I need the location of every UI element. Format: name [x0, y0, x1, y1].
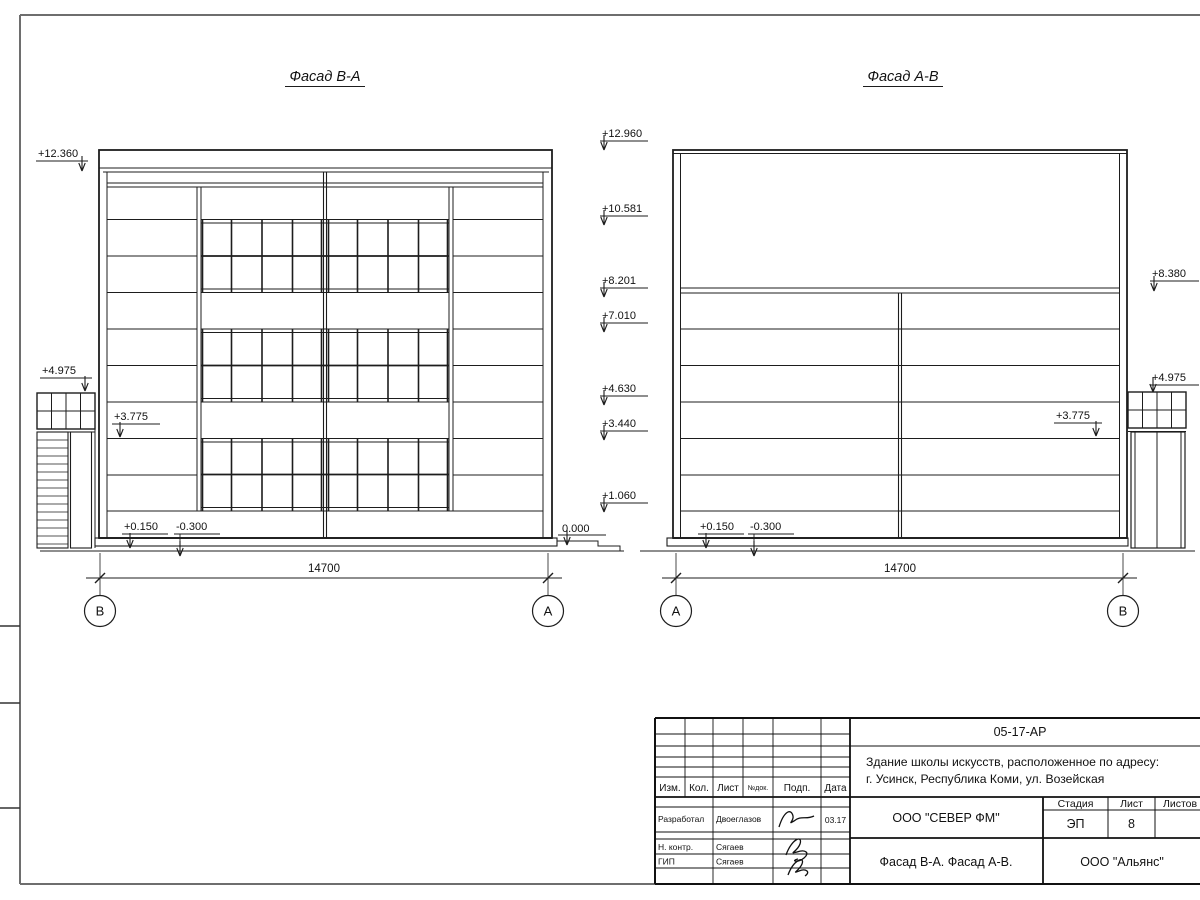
row1-date: 03.17: [825, 815, 847, 825]
stage-value: ЭП: [1067, 817, 1085, 831]
dimension-label: 14700: [884, 563, 916, 575]
stage-label: Стадия: [1058, 798, 1094, 810]
project-name-line2: г. Усинск, Республика Коми, ул. Возейска…: [866, 772, 1104, 786]
row3-role: ГИП: [658, 857, 675, 867]
row3-name: Сягаев: [716, 857, 744, 867]
elevation-mark: 0.000: [562, 523, 590, 535]
title-block: 05-17-АР Здание школы искусств, располож…: [655, 718, 1200, 884]
sheets-label: Листов: [1163, 798, 1198, 810]
sheet-label: Лист: [1120, 798, 1143, 810]
sheet-frame: [0, 15, 1200, 884]
axis-label: А: [544, 604, 553, 619]
elevation-mark: +4.630: [602, 383, 636, 395]
right-tower: [1128, 392, 1186, 548]
col-header-doc: №док.: [748, 785, 769, 792]
row1-role: Разработал: [658, 814, 704, 824]
drawing-title: Фасад В-А. Фасад А-В.: [880, 855, 1013, 869]
facade-left-title-text: Фасад В-А: [289, 69, 360, 85]
col-header-kol: Кол.: [689, 783, 709, 794]
axis-label: А: [672, 604, 681, 619]
facade-left-dimension: 14700 В А: [85, 553, 564, 627]
elevation-mark: +8.380: [1152, 268, 1186, 280]
signature-row1: [779, 812, 814, 827]
col-header-podp: Подп.: [784, 783, 811, 794]
facade-drawing-canvas: Фасад В-А Фасад А-В: [0, 0, 1200, 900]
dimension-label: 14700: [308, 563, 340, 575]
facade-right-dimension: 14700 А В: [661, 553, 1139, 627]
facade-right-drawing: [640, 150, 1195, 551]
elevation-mark: +4.975: [42, 365, 76, 377]
elevation-mark: +3.775: [1056, 410, 1090, 422]
elevation-mark: +3.775: [114, 411, 148, 423]
row1-name: Двоеглазов: [716, 814, 762, 824]
facade-right-title: Фасад А-В: [863, 69, 943, 87]
elevation-mark: +7.010: [602, 310, 636, 322]
elevation-mark: +1.060: [602, 490, 636, 502]
doc-code: 05-17-АР: [994, 725, 1047, 739]
elevation-mark: +12.960: [602, 128, 642, 140]
drawing-sheet: Фасад В-А Фасад А-В: [0, 0, 1200, 900]
col-header-data: Дата: [824, 783, 847, 794]
facade-right-elevation-marks: +8.380 +4.975 +3.775 +0.150 -0.300: [698, 268, 1199, 556]
left-tower: [37, 393, 95, 548]
org-name: ООО "СЕВЕР ФМ": [892, 811, 999, 825]
row2-role: Н. контр.: [658, 842, 693, 852]
facade-left-title: Фасад В-А: [285, 69, 365, 87]
axis-label: В: [1119, 604, 1128, 619]
elevation-mark: +3.440: [602, 418, 636, 430]
col-header-izm: Изм.: [659, 783, 680, 794]
elevation-mark: +4.975: [1152, 372, 1186, 384]
elevation-mark: +0.150: [700, 521, 734, 533]
elevation-mark: +10.581: [602, 203, 642, 215]
elevation-mark: -0.300: [176, 521, 207, 533]
facade-right-title-text: Фасад А-В: [867, 69, 938, 85]
center-elevation-marks: +12.960 +10.581 +8.201 +7.010 +4.630 +3.…: [600, 128, 648, 512]
project-name-line1: Здание школы искусств, расположенное по …: [866, 755, 1159, 769]
elevation-mark: +0.150: [124, 521, 158, 533]
col-header-list: Лист: [717, 783, 739, 794]
row2-name: Сягаев: [716, 842, 744, 852]
signature-row2: [786, 839, 807, 861]
elevation-mark: -0.300: [750, 521, 781, 533]
org2-name: ООО "Альянс": [1080, 855, 1164, 869]
axis-label: В: [96, 604, 105, 619]
elevation-mark: +8.201: [602, 275, 636, 287]
facade-left-drawing: [37, 150, 624, 551]
sheet-value: 8: [1128, 817, 1135, 831]
elevation-mark: +12.360: [38, 148, 78, 160]
